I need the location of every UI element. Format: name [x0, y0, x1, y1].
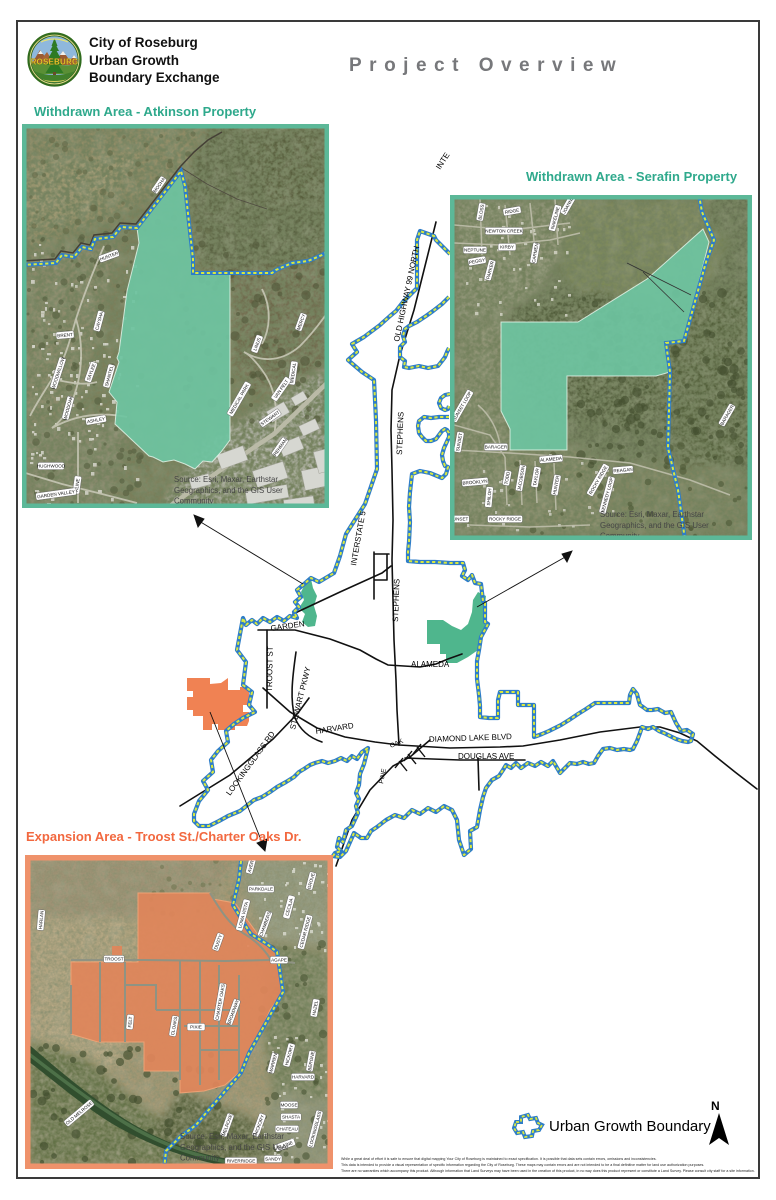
svg-text:STEPHENS: STEPHENS — [395, 412, 405, 455]
svg-text:ROCKY RIDGE: ROCKY RIDGE — [489, 517, 521, 522]
svg-text:TROOST: TROOST — [104, 957, 123, 962]
svg-text:Geographics, and the GIS User: Geographics, and the GIS User — [600, 521, 709, 530]
svg-text:DOUGLAS AVE: DOUGLAS AVE — [458, 752, 514, 761]
svg-text:DIAMOND LAKE BLVD: DIAMOND LAKE BLVD — [429, 732, 512, 744]
svg-text:Source: Esri, Maxar, Earthstar: Source: Esri, Maxar, Earthstar — [180, 1132, 284, 1141]
svg-text:Geographics, and the GIS User: Geographics, and the GIS User — [174, 486, 283, 495]
svg-text:LOOKINGGLASS RD: LOOKINGGLASS RD — [224, 729, 277, 797]
svg-text:CHATEAU: CHATEAU — [276, 1127, 298, 1132]
svg-text:OAK: OAK — [389, 738, 405, 750]
svg-text:INTE: INTE — [434, 151, 451, 171]
svg-text:KIRBY: KIRBY — [500, 245, 514, 250]
svg-text:Geographics, and the GIS User: Geographics, and the GIS User — [180, 1143, 289, 1152]
svg-text:SANDY: SANDY — [265, 1157, 281, 1162]
svg-text:AGAPE: AGAPE — [271, 958, 287, 963]
svg-text:Community: Community — [180, 1154, 220, 1163]
svg-text:SHASTA: SHASTA — [282, 1115, 301, 1120]
svg-text:FELT: FELT — [127, 1016, 133, 1027]
svg-text:STEPHENS: STEPHENS — [391, 579, 401, 622]
svg-text:Source: Esri, Maxar, Earthstar: Source: Esri, Maxar, Earthstar — [600, 510, 704, 519]
svg-text:MOOSE: MOOSE — [280, 1103, 297, 1108]
svg-text:PIXIE: PIXIE — [190, 1025, 202, 1030]
svg-text:NEPTUNE: NEPTUNE — [464, 248, 486, 253]
svg-text:RIVERRIDGE: RIVERRIDGE — [227, 1159, 256, 1164]
svg-text:ALAMEDA: ALAMEDA — [411, 660, 450, 669]
svg-text:HUGHWOOD: HUGHWOOD — [37, 464, 66, 469]
svg-text:HARVARD: HARVARD — [292, 1075, 315, 1080]
svg-text:NEWTON CREEK: NEWTON CREEK — [485, 229, 523, 234]
svg-text:BARAGER: BARAGER — [485, 445, 508, 450]
svg-text:INTERSTATE 5: INTERSTATE 5 — [349, 510, 368, 567]
svg-text:PINE: PINE — [378, 767, 388, 784]
svg-text:Source: Esri, Maxar, Earthstar: Source: Esri, Maxar, Earthstar — [174, 475, 278, 484]
svg-text:TROOST ST: TROOST ST — [265, 646, 275, 692]
svg-text:PARKDALE: PARKDALE — [249, 887, 273, 892]
